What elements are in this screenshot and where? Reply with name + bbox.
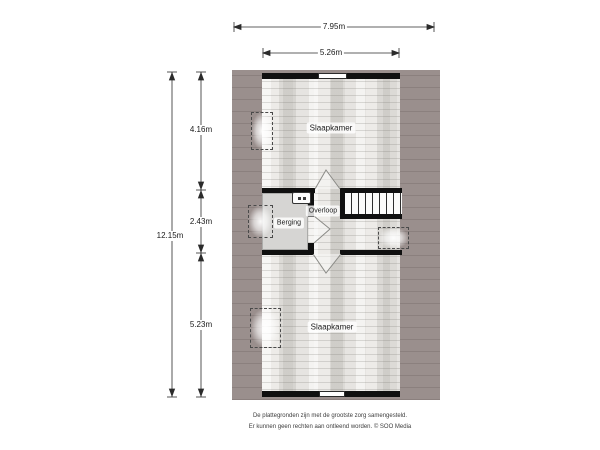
dim-label-left-top: 4.16m — [188, 125, 214, 135]
wall-landing-bottom-right — [340, 250, 402, 255]
skylight-icon-bottom-bedroom — [250, 308, 281, 348]
disclaimer-text: De plattegronden zijn met de grootste zo… — [249, 411, 412, 433]
room-label-landing: Overloop — [306, 206, 340, 217]
staircase — [345, 193, 402, 214]
wall-top-left — [262, 73, 318, 79]
dim-label-left-total: 12.15m — [155, 231, 186, 241]
dim-label-left-middle: 2.43m — [188, 217, 214, 227]
wall-bottom-left — [262, 391, 319, 397]
dim-label-top-total: 7.95m — [321, 22, 347, 32]
disclaimer-line2: Er kunnen geen rechten aan ontleend word… — [249, 422, 412, 433]
room-label-storage: Berging — [274, 218, 304, 229]
boiler-icon — [292, 192, 311, 204]
room-label-bedroom-bottom: Slaapkamer — [308, 322, 357, 333]
skylight-icon-top-bedroom — [251, 112, 273, 150]
wall-storage-right-lower — [308, 243, 314, 255]
dim-label-left-bottom: 5.23m — [188, 320, 214, 330]
wall-top-right — [347, 73, 400, 79]
skylight-icon-landing — [378, 227, 409, 249]
floorplan-canvas: 7.95m 5.26m 12.15m 4.16m 2.43m 5.23m Sla… — [0, 0, 600, 450]
disclaimer-line1: De plattegronden zijn met de grootste zo… — [249, 411, 412, 422]
wall-landing-bottom-left — [262, 250, 313, 255]
wall-bottom-right — [345, 391, 400, 397]
window-bottom — [319, 391, 345, 397]
wall-stairs-left-cap — [340, 188, 345, 219]
window-top — [318, 73, 347, 79]
wall-landing-top-right — [340, 188, 402, 193]
dim-label-top-inner: 5.26m — [318, 48, 344, 58]
wall-stairs-bottom — [345, 214, 402, 219]
skylight-icon-storage — [248, 205, 273, 238]
room-label-bedroom-top: Slaapkamer — [307, 123, 356, 134]
